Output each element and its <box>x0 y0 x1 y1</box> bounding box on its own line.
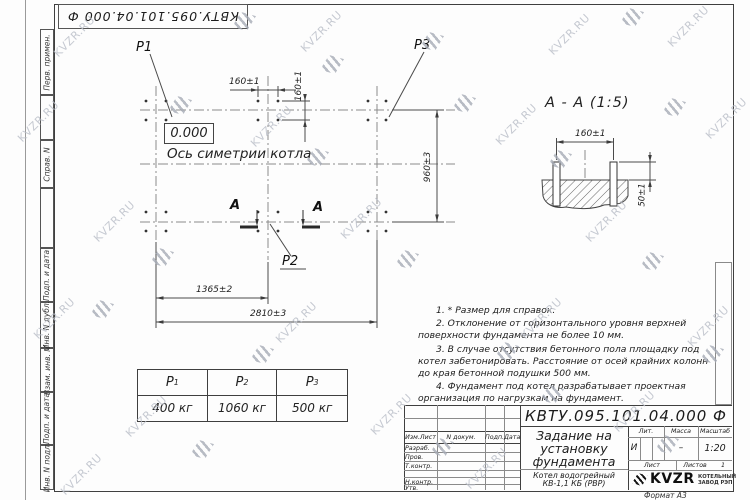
section-dim-bolt-pitch: 160±1 <box>575 129 605 139</box>
tb-mass-value: – <box>664 443 698 453</box>
tb-sheets-value: 1 <box>714 462 732 469</box>
drawing-sheet: KVZR.RUKVZR.RUKVZR.RUKVZR.RUKVZR.RUKVZR.… <box>0 0 750 500</box>
zero-level-value: 0.000 <box>170 126 207 141</box>
anchor-bolt-dot <box>145 230 148 233</box>
anchor-bolt-dot <box>277 230 280 233</box>
anchor-bolt-dot <box>145 100 148 103</box>
zero-level-box: 0.000 <box>164 123 214 144</box>
loads-header-p1: Р1 <box>138 370 208 396</box>
tb-lit-label: Лит. <box>628 428 664 435</box>
tb-logo-caption: КОТЕЛЬНЫЙ ЗАВОД РЭП <box>698 474 736 486</box>
load-point-p2-label: Р2 <box>282 254 298 269</box>
section-letter-right: А <box>313 200 323 215</box>
dim-length-2810: 2810±3 <box>250 309 286 319</box>
anchor-bolt-dot <box>277 211 280 214</box>
anchor-bolt-dot <box>367 211 370 214</box>
tb-row-tkontr: Т.контр. <box>405 463 437 470</box>
section-dim-bolt-height: 50±1 <box>636 182 650 208</box>
loads-table: Р1 Р2 Р3 400 кг 1060 кг 500 кг <box>137 369 348 422</box>
anchor-bolt-dot <box>277 100 280 103</box>
loads-value-p2: 1060 кг <box>208 396 278 422</box>
anchor-bolt-dot <box>385 119 388 122</box>
tb-row-prov: Пров. <box>405 454 437 461</box>
tb-col-n-dokum: N докум. <box>437 434 485 441</box>
tb-doc-number: КВТУ.095.101.04.000 Ф <box>520 407 732 425</box>
loads-header-p3: Р3 <box>277 370 347 396</box>
anchor-bolt-dot <box>367 100 370 103</box>
loads-header-p2: Р2 <box>208 370 278 396</box>
load-point-p1-label: Р1 <box>136 40 152 55</box>
tb-sheet-label: Лист <box>628 462 676 469</box>
note-3: 3. В случае отсутствия бетонного пола пл… <box>418 344 716 380</box>
tb-col-podp: Подп. <box>485 434 504 441</box>
tb-sheets-label: Листов <box>676 462 714 469</box>
tb-row-razrab: Разраб. <box>405 445 437 452</box>
dim-bolt-pitch-h: 160±1 <box>229 77 259 87</box>
anchor-bolt-dot <box>257 119 260 122</box>
technical-notes: 1. * Размер для справок. 2. Отклонение о… <box>418 305 716 407</box>
tb-title: Задание на установку фундамента <box>520 429 628 468</box>
load-point-p3-label: Р3 <box>414 38 430 53</box>
loads-value-p3: 500 кг <box>277 396 347 422</box>
anchor-bolt-dot <box>385 100 388 103</box>
anchor-bolt-dot <box>145 211 148 214</box>
anchor-bolt-dot <box>277 119 280 122</box>
anchor-bolt-dot <box>367 119 370 122</box>
tb-scale-label: Масштаб <box>698 428 732 435</box>
anchor-bolt-dot <box>165 211 168 214</box>
anchor-bolt-dot <box>385 211 388 214</box>
tb-logo-text: KVZR <box>650 471 695 487</box>
section-letter-left: А <box>230 198 240 213</box>
format-label: Формат А3 <box>644 491 687 500</box>
anchor-bolt-dot <box>385 230 388 233</box>
tb-col-data: Дата <box>504 434 520 441</box>
tb-scale-value: 1:20 <box>698 443 732 454</box>
note-4: 4. Фундамент под котел разрабатывает про… <box>418 381 716 405</box>
tb-col-izm-list: Изм.Лист <box>404 434 437 441</box>
tb-lit-value: И <box>628 443 640 453</box>
dim-width-960: 960±3 <box>420 146 436 188</box>
loads-value-p1: 400 кг <box>138 396 208 422</box>
boiler-axis-label: Ось симетрии котла <box>167 146 311 162</box>
anchor-bolt-dot <box>367 230 370 233</box>
tb-row-utv: Утв. <box>405 485 437 492</box>
note-1: 1. * Размер для справок. <box>418 305 716 317</box>
anchor-bolt-dot <box>165 230 168 233</box>
tb-mass-label: Масса <box>664 428 698 435</box>
tb-product: Котел водогрейный КВ-1,1 КБ (РВР) <box>520 472 628 489</box>
anchor-bolt-dot <box>257 230 260 233</box>
plan-and-section-linework <box>0 0 750 500</box>
anchor-bolt-dot <box>257 100 260 103</box>
dim-half-length-1365: 1365±2 <box>196 285 232 295</box>
dim-bolt-pitch-v: 160±1 <box>291 66 307 106</box>
anchor-bolt-dot <box>145 119 148 122</box>
anchor-bolt-dot <box>165 119 168 122</box>
anchor-bolt-left <box>553 162 560 206</box>
section-view-title: А - А (1:5) <box>545 95 630 111</box>
note-2: 2. Отклонение от горизонтального уровня … <box>418 318 716 342</box>
anchor-bolt-right <box>610 162 617 206</box>
